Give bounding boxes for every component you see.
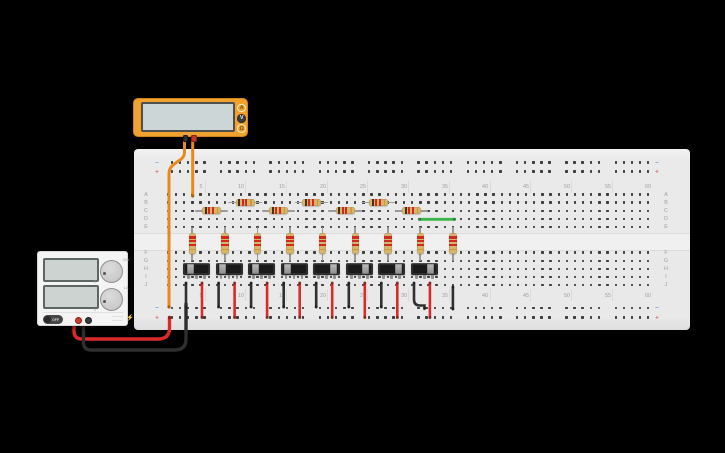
wire-end — [233, 316, 236, 319]
wire-end — [363, 316, 366, 319]
wire-end — [168, 316, 171, 319]
wire-end — [347, 305, 350, 308]
multimeter-black-probe[interactable] — [183, 135, 189, 142]
psu-current-knob[interactable] — [100, 288, 123, 311]
psu-current-display — [43, 285, 99, 309]
wire-end — [423, 307, 426, 310]
multimeter-mode-v-button[interactable]: V — [237, 114, 246, 123]
wire-end — [418, 218, 421, 221]
wire-end — [184, 305, 187, 308]
psu-positive-terminal[interactable] — [75, 317, 82, 324]
wire-end — [315, 281, 318, 284]
wire-end — [298, 281, 301, 284]
wire-end — [184, 281, 187, 284]
wire-end — [380, 281, 383, 284]
wire-end — [298, 316, 301, 319]
wire-end — [412, 281, 415, 284]
wire-end — [167, 305, 170, 308]
psu-power-button[interactable]: OFF — [43, 315, 63, 324]
multimeter-display — [141, 102, 235, 132]
wire-end — [282, 305, 285, 308]
knob-indicator — [103, 300, 106, 303]
black-elbow-jumper-wire[interactable] — [414, 283, 425, 309]
wires-layer — [0, 0, 725, 453]
multimeter-black-lead-wire[interactable] — [169, 139, 185, 307]
psu-negative-terminal[interactable] — [85, 317, 92, 324]
multimeter[interactable]: AVΩ — [133, 98, 248, 137]
psu-divider — [42, 312, 123, 313]
wire-end — [200, 281, 203, 284]
current-knob-max-label: 1A — [124, 286, 129, 290]
lightning-icon: ⚡ — [126, 315, 134, 321]
wire-end — [451, 285, 454, 288]
wire-end — [266, 281, 269, 284]
knob-indicator — [103, 272, 106, 275]
wire-end — [217, 305, 220, 308]
circuit-canvas: AABBCCDDEEFFGGHHIIJJ55101015152020252530… — [0, 0, 725, 453]
wire-end — [347, 281, 350, 284]
wire-end — [315, 305, 318, 308]
voltage-knob-min-label: 0 — [94, 280, 96, 284]
wire-end — [396, 281, 399, 284]
psu-voltage-knob[interactable] — [100, 260, 123, 283]
wire-end — [250, 305, 253, 308]
wire-end — [331, 316, 334, 319]
wire-end — [451, 307, 454, 310]
wire-end — [331, 281, 334, 284]
power-button-nub — [44, 316, 51, 323]
psu-branding: ⚡ — [112, 315, 132, 325]
wire-end — [380, 305, 383, 308]
wire-end — [396, 316, 399, 319]
psu-voltage-display — [43, 258, 99, 282]
wire-end — [428, 281, 431, 284]
multimeter-red-probe[interactable] — [191, 135, 197, 142]
wire-end — [250, 281, 253, 284]
wire-end — [363, 281, 366, 284]
voltage-knob-max-label: 30V — [123, 258, 130, 262]
wire-end — [233, 281, 236, 284]
power-supply[interactable]: 0 30V 0 1A OFF ⚡ — [37, 251, 128, 326]
wire-end — [191, 194, 194, 197]
wire-end — [428, 316, 431, 319]
multimeter-mode-a-button[interactable]: A — [237, 104, 246, 113]
wire-end — [282, 281, 285, 284]
wire-end — [200, 316, 203, 319]
wire-end — [266, 316, 269, 319]
multimeter-mode-ω-button[interactable]: Ω — [237, 124, 246, 133]
wire-end — [217, 281, 220, 284]
wire-end — [453, 218, 456, 221]
power-button-label: OFF — [52, 318, 59, 322]
